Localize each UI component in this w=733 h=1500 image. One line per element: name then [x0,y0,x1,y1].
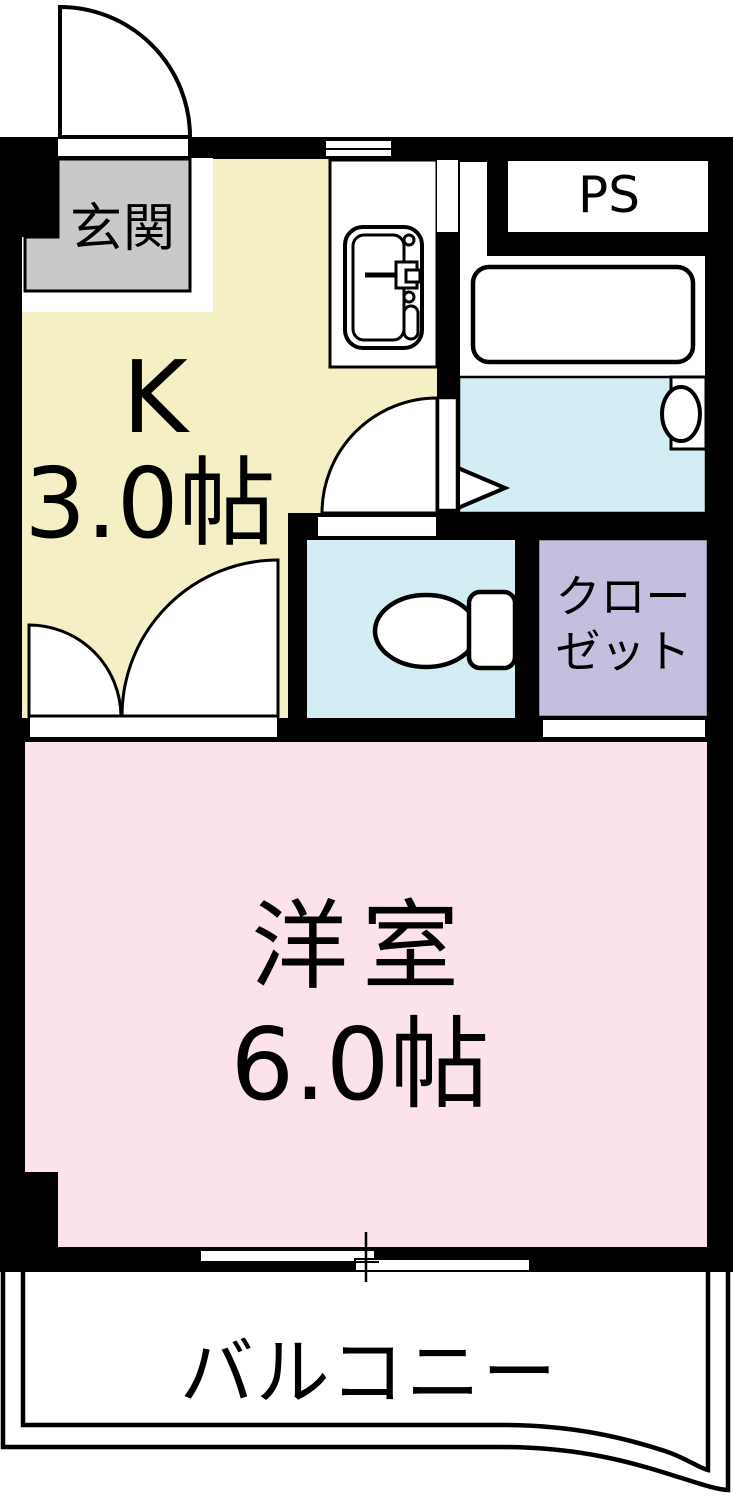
western-room-size-label: 6.0帖 [230,1006,489,1123]
closet-label-line2: ゼット [555,625,690,678]
floor-plan: PS クロー ゼット 玄関 K 3.0帖 洋室 6.0帖 バルコニー [0,0,733,1500]
closet-label-line1: クロー [555,570,690,623]
entrance-opening [58,137,188,156]
ps-label: PS [578,166,640,224]
kitchen-size-label: 3.0帖 [24,447,275,560]
kitchen-door-threshold [29,716,278,738]
kitchen-sink-icon [345,227,422,348]
wall-segment [22,158,58,237]
washbasin-icon [662,387,700,441]
balcony-label: バルコニー [180,1330,559,1416]
corridor [437,160,459,232]
bathtub-icon [473,267,693,362]
toilet-icon [375,592,515,668]
kitchen-label: K [122,339,190,456]
toilet-door-threshold [317,516,437,537]
genkan-label: 玄関 [70,199,176,259]
bath-door-leaf [438,398,457,510]
closet-door-opening [542,719,706,738]
western-room-label: 洋室 [251,890,473,1003]
floor-plan-page: PS クロー ゼット 玄関 K 3.0帖 洋室 6.0帖 バルコニー [0,0,733,1500]
wall-notch [25,1172,58,1247]
